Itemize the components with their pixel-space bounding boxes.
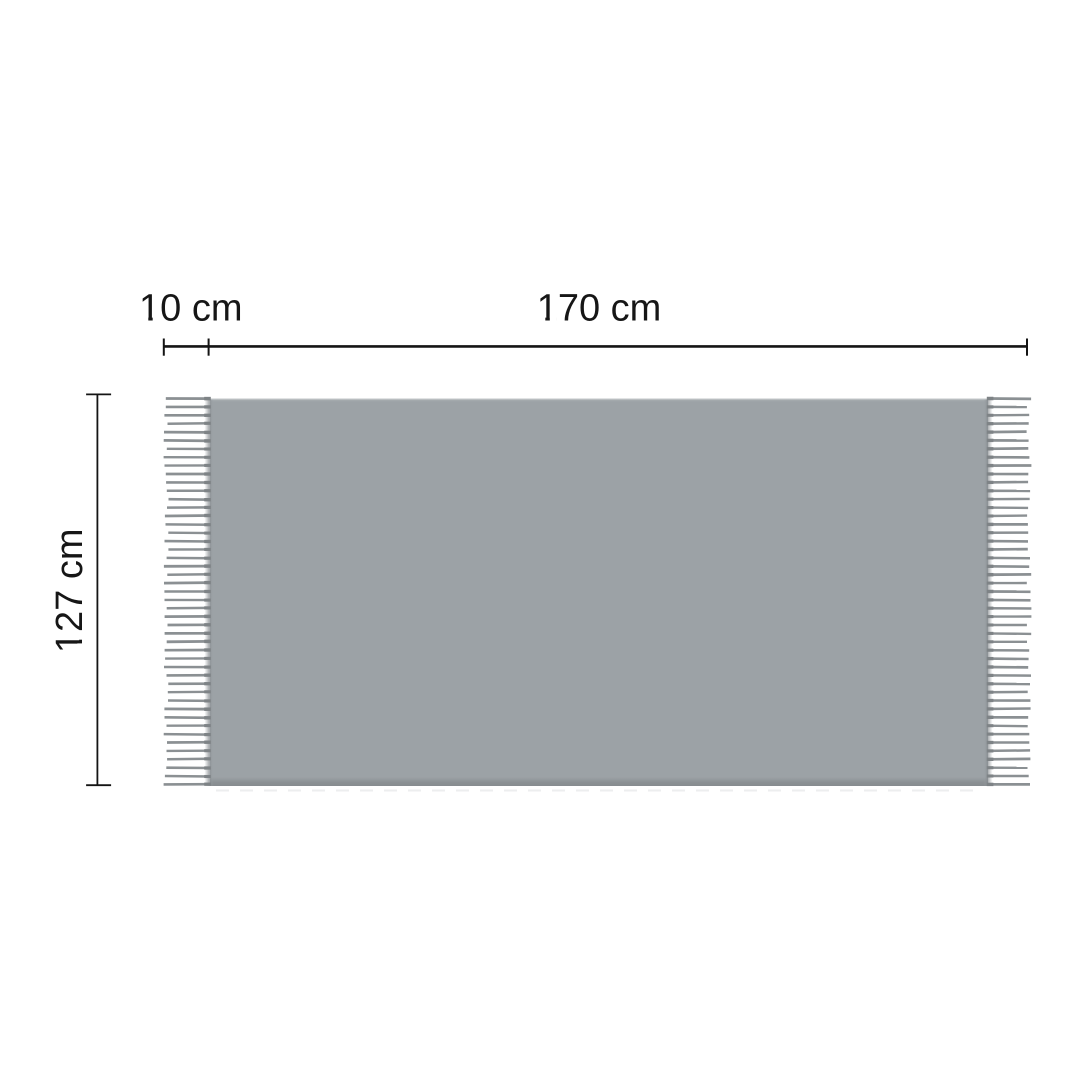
svg-text:10 cm: 10 cm [139,288,242,330]
svg-text:170 cm: 170 cm [537,288,662,330]
svg-text:127 cm: 127 cm [49,528,91,653]
